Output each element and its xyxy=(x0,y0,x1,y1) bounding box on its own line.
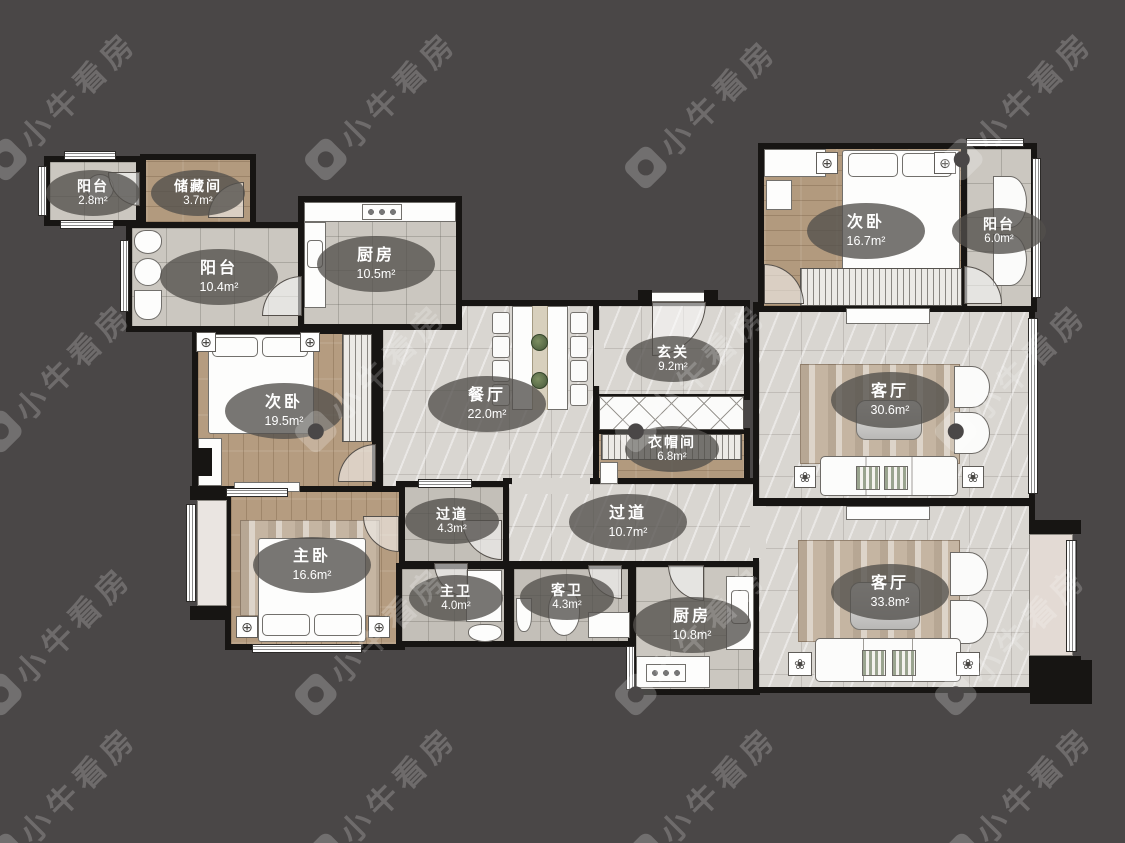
watermark: 小牛看房 xyxy=(298,18,467,187)
room-label-kitchen-bottom: 厨房10.8m² xyxy=(633,597,751,653)
room-label-balcony-right: 阳台6.0m² xyxy=(952,208,1046,254)
sofa-cushion xyxy=(884,466,908,490)
room-label-kitchen-top: 厨房10.5m² xyxy=(317,236,435,292)
niu-logo-icon xyxy=(621,143,669,191)
room-label-bedroom-left: 次卧19.5m² xyxy=(225,383,343,439)
tv-cabinet xyxy=(846,506,930,520)
plant-box: ❀ xyxy=(962,466,984,488)
window xyxy=(1066,540,1077,652)
sofa-cushion xyxy=(892,650,916,676)
room-label-living-upper: 客厅30.6m² xyxy=(831,372,949,428)
sofa-cushion xyxy=(862,650,886,676)
window xyxy=(64,151,116,160)
watermark: 小牛看房 xyxy=(618,713,787,843)
toilet xyxy=(468,624,502,642)
armchair xyxy=(950,552,988,596)
armchair xyxy=(954,366,990,408)
room-label-balcony-left: 阳台10.4m² xyxy=(160,249,278,305)
wardrobe xyxy=(342,334,372,442)
room-label-hall-main: 过道10.7m² xyxy=(569,494,687,550)
window xyxy=(186,504,196,602)
plant-box: ❀ xyxy=(788,652,812,676)
room-label-foyer: 玄关9.2m² xyxy=(626,336,720,382)
niu-logo-icon xyxy=(0,407,24,455)
window xyxy=(966,138,1024,147)
bay-floor-master xyxy=(197,500,227,606)
dining-chair xyxy=(570,360,588,382)
dining-chair xyxy=(570,312,588,334)
ceiling-lamp-icon: ⊕ xyxy=(934,152,956,174)
opening xyxy=(594,330,604,386)
wall-entry-post-right xyxy=(704,290,718,304)
dining-chair xyxy=(492,312,510,334)
ceiling-lamp-icon: ⊕ xyxy=(368,616,390,638)
niu-logo-icon xyxy=(301,135,349,183)
window xyxy=(418,479,472,488)
niu-logo-icon xyxy=(937,830,985,843)
pillow xyxy=(212,337,258,357)
window xyxy=(60,220,114,229)
room-label-hall-small: 过道4.3m² xyxy=(405,498,499,544)
basin xyxy=(134,290,162,320)
sofa-cushion xyxy=(856,466,880,490)
window xyxy=(252,644,362,653)
wardrobe xyxy=(800,268,962,306)
niu-logo-icon xyxy=(301,830,349,843)
sofa xyxy=(815,638,961,682)
niu-logo-icon xyxy=(0,135,29,183)
pillow xyxy=(262,614,310,636)
plant-box: ❀ xyxy=(956,652,980,676)
cooktop-icon xyxy=(646,664,686,682)
opening xyxy=(512,478,590,494)
opening xyxy=(750,506,766,558)
room-label-dining: 餐厅22.0m² xyxy=(428,376,546,432)
room-label-guest-bath: 客卫4.3m² xyxy=(520,574,614,620)
niu-logo-icon xyxy=(0,670,24,718)
pillow xyxy=(314,614,362,636)
floor-plan: ⊕ ⊕ ⊕ ⊕ ❀ ❀ ❀ ❀ xyxy=(0,0,1125,843)
room-label-cloakroom: 衣帽间6.8m² xyxy=(625,426,719,472)
pillow xyxy=(848,153,898,177)
ceiling-lamp-icon: ⊕ xyxy=(816,152,838,174)
room-label-storage: 储藏间3.7m² xyxy=(151,170,245,216)
plant-box: ❀ xyxy=(794,466,816,488)
dining-chair xyxy=(570,384,588,406)
ceiling-lamp-icon: ⊕ xyxy=(300,332,320,352)
plant xyxy=(531,334,548,351)
vanity xyxy=(588,612,630,638)
window xyxy=(226,488,288,497)
ceiling-lamp-icon: ⊕ xyxy=(196,332,216,352)
room-label-master-bath: 主卫4.0m² xyxy=(409,575,503,621)
tv-cabinet xyxy=(846,308,930,324)
room-label-master-bedroom: 主卧16.6m² xyxy=(253,537,371,593)
wall-entry-post-left xyxy=(638,290,652,304)
watermark: 小牛看房 xyxy=(934,713,1103,843)
bay-cap-living-bottom xyxy=(1029,656,1081,672)
entry-door-leaf xyxy=(650,292,706,302)
niu-logo-icon xyxy=(291,670,339,718)
armchair xyxy=(954,412,990,454)
watermark: 小牛看房 xyxy=(0,553,141,722)
bay-cap-master-bottom xyxy=(190,606,228,620)
niu-logo-icon xyxy=(621,830,669,843)
toilet xyxy=(134,230,162,254)
washer xyxy=(600,462,618,484)
nightstand xyxy=(766,180,792,210)
room-label-bedroom-top-right: 次卧16.7m² xyxy=(807,203,925,259)
wall-pillar xyxy=(196,448,212,476)
dining-chair xyxy=(570,336,588,358)
niu-logo-icon xyxy=(0,830,29,843)
dining-chair xyxy=(492,336,510,358)
cooktop-icon xyxy=(362,204,402,220)
room-label-balcony-top-left: 阳台2.8m² xyxy=(46,170,140,216)
window xyxy=(1028,318,1038,494)
watermark: 小牛看房 xyxy=(0,290,141,459)
bay-cap-living-top xyxy=(1029,520,1081,534)
watermark: 小牛看房 xyxy=(0,713,146,843)
window xyxy=(626,646,635,690)
ceiling-lamp-icon: ⊕ xyxy=(236,616,258,638)
window xyxy=(120,240,129,312)
watermark: 小牛看房 xyxy=(298,713,467,843)
room-label-living-lower: 客厅33.8m² xyxy=(831,564,949,620)
bay-cap-master-top xyxy=(190,486,228,500)
washer xyxy=(134,258,162,286)
shoe-cabinet xyxy=(599,396,744,430)
